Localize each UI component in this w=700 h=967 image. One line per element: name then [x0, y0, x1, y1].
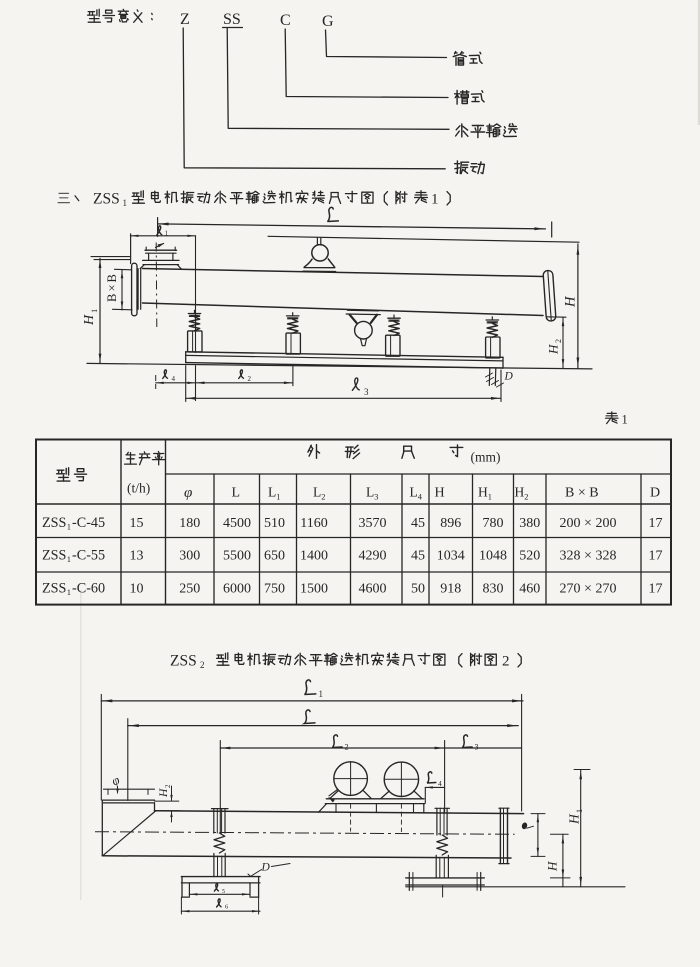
svg-text:45: 45	[411, 549, 425, 564]
svg-text:896: 896	[440, 516, 461, 531]
svg-text:4600: 4600	[359, 582, 387, 597]
svg-text:Z: Z	[180, 11, 190, 28]
svg-text:2: 2	[248, 375, 252, 383]
svg-text:-C-60: -C-60	[72, 581, 105, 597]
svg-text:1: 1	[431, 192, 439, 208]
svg-text:1: 1	[575, 809, 584, 813]
svg-text:ZSS: ZSS	[42, 515, 67, 531]
svg-text:2: 2	[164, 784, 172, 788]
svg-text:D: D	[261, 862, 271, 874]
svg-text:180: 180	[179, 516, 200, 531]
svg-text:2: 2	[345, 743, 349, 752]
svg-text:H: H	[563, 295, 579, 308]
svg-text:4: 4	[438, 779, 442, 788]
svg-text:510: 510	[264, 516, 285, 531]
svg-text:B × B: B × B	[565, 486, 599, 501]
svg-text:650: 650	[264, 549, 285, 564]
svg-text:328 × 328: 328 × 328	[560, 549, 617, 564]
svg-text:5: 5	[222, 889, 225, 895]
svg-text:×: ×	[105, 284, 119, 291]
svg-text:10: 10	[130, 582, 144, 597]
svg-text:H: H	[82, 314, 97, 326]
svg-text:2: 2	[554, 339, 563, 343]
svg-text:5500: 5500	[223, 549, 251, 564]
svg-text:1160: 1160	[300, 516, 327, 531]
svg-text:SS: SS	[223, 11, 241, 28]
svg-text:4: 4	[172, 375, 176, 383]
svg-text:17: 17	[649, 516, 663, 531]
svg-text:H: H	[435, 486, 445, 501]
svg-text:D: D	[504, 371, 514, 383]
svg-text:L: L	[232, 486, 241, 501]
svg-text:1: 1	[123, 198, 128, 208]
svg-text:3570: 3570	[359, 516, 387, 531]
svg-text:3: 3	[475, 743, 479, 752]
svg-text:φ: φ	[184, 485, 192, 501]
svg-text:750: 750	[264, 582, 285, 597]
svg-text:1034: 1034	[437, 549, 465, 564]
svg-text:ZSS: ZSS	[170, 653, 197, 670]
svg-text:520: 520	[519, 549, 540, 564]
svg-text:1: 1	[89, 309, 99, 313]
svg-text:ZSS: ZSS	[42, 548, 67, 564]
svg-text:830: 830	[483, 582, 504, 597]
svg-text:300: 300	[179, 549, 200, 564]
svg-text:918: 918	[440, 582, 461, 597]
svg-text:B: B	[105, 294, 119, 302]
svg-text:2: 2	[502, 654, 510, 670]
svg-text:17: 17	[649, 549, 663, 564]
svg-text:H: H	[567, 813, 582, 825]
svg-text:(t/h): (t/h)	[127, 481, 150, 496]
svg-text:ZSS: ZSS	[42, 581, 67, 597]
svg-text:1048: 1048	[479, 549, 507, 564]
svg-text:1: 1	[67, 522, 71, 532]
svg-text:460: 460	[519, 582, 540, 597]
svg-text:B: B	[105, 274, 119, 282]
svg-text:1: 1	[67, 554, 71, 564]
svg-text:2: 2	[200, 660, 205, 670]
svg-text:200 × 200: 200 × 200	[560, 516, 617, 531]
svg-text:3: 3	[364, 387, 369, 397]
svg-text:15: 15	[130, 516, 144, 531]
svg-text:1: 1	[165, 230, 169, 238]
svg-text:50: 50	[411, 582, 425, 597]
svg-text:13: 13	[130, 549, 144, 564]
svg-text:H: H	[158, 788, 170, 798]
svg-text:1: 1	[319, 689, 324, 699]
svg-text:G: G	[322, 13, 334, 30]
svg-text:(mm): (mm)	[471, 450, 501, 465]
svg-text:H: H	[546, 344, 561, 355]
svg-text:1400: 1400	[300, 549, 328, 564]
svg-text:6000: 6000	[223, 582, 251, 597]
svg-text:17: 17	[649, 582, 663, 597]
svg-text:1: 1	[622, 413, 628, 427]
svg-text:-C-45: -C-45	[72, 515, 105, 531]
svg-text:4500: 4500	[223, 516, 251, 531]
svg-text:780: 780	[483, 516, 504, 531]
svg-text:4290: 4290	[359, 549, 387, 564]
svg-text:1: 1	[67, 587, 71, 597]
svg-text:C: C	[280, 12, 291, 29]
svg-text:380: 380	[519, 516, 540, 531]
svg-text:250: 250	[179, 582, 200, 597]
svg-text:45: 45	[411, 516, 425, 531]
svg-text:D: D	[650, 486, 660, 501]
svg-text:ZSS: ZSS	[93, 191, 120, 208]
svg-text:270 × 270: 270 × 270	[560, 582, 617, 597]
svg-text:-C-55: -C-55	[72, 548, 105, 564]
svg-text:H: H	[545, 861, 560, 872]
svg-text:1500: 1500	[300, 582, 328, 597]
